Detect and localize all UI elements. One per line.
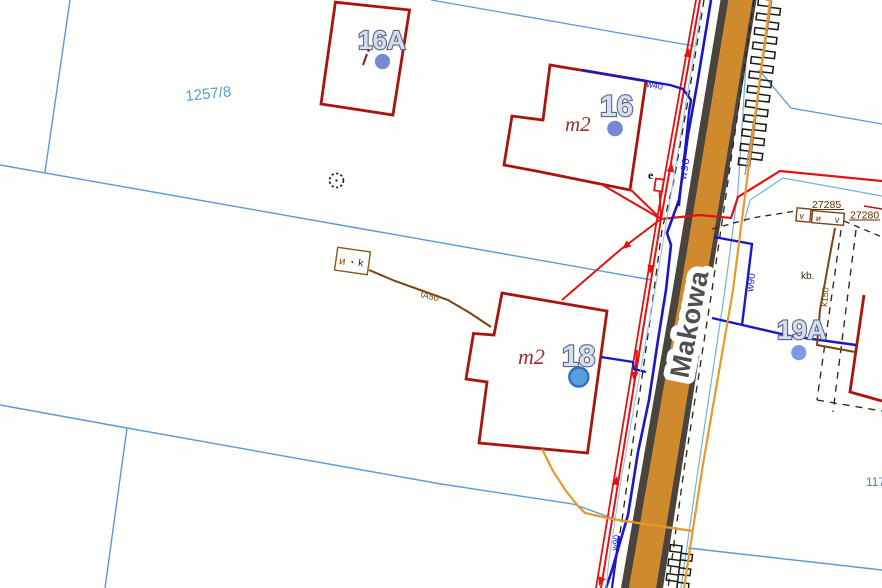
svg-text:19A: 19A	[777, 315, 827, 345]
svg-text:e: e	[648, 168, 654, 182]
svg-text:и: и	[816, 213, 822, 223]
svg-text:k150: k150	[819, 287, 831, 307]
svg-text:16A: 16A	[358, 25, 406, 55]
svg-text:kb.: kb.	[801, 271, 814, 282]
svg-text:m2: m2	[518, 344, 545, 369]
svg-text:117: 117	[866, 475, 882, 489]
svg-text:m2: m2	[565, 112, 591, 136]
svg-text:16: 16	[600, 90, 633, 123]
